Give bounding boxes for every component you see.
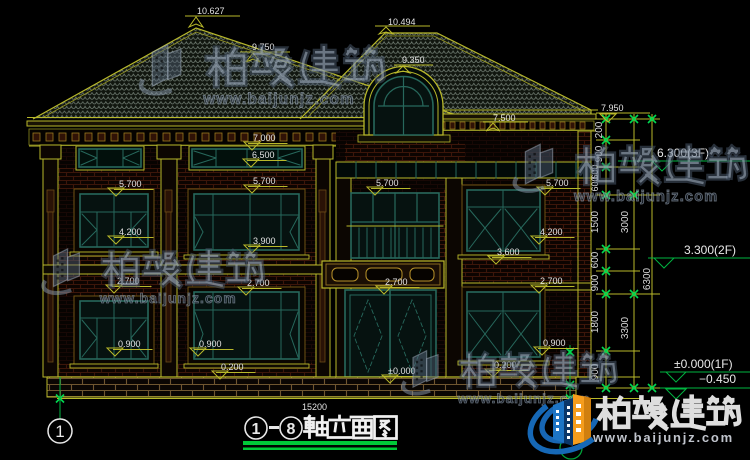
svg-text:900: 900 — [590, 274, 601, 291]
svg-text:www.baijunjz.com: www.baijunjz.com — [592, 430, 734, 445]
svg-text:200: 200 — [594, 121, 605, 138]
svg-text:600: 600 — [590, 251, 601, 268]
svg-text:−0.450: −0.450 — [699, 372, 736, 386]
svg-text:1: 1 — [252, 421, 261, 438]
svg-text:15200: 15200 — [302, 402, 327, 412]
svg-text:1800: 1800 — [590, 310, 601, 333]
svg-text:3.300(2F): 3.300(2F) — [684, 243, 736, 257]
svg-text:10.494: 10.494 — [388, 17, 416, 27]
svg-text:9.350: 9.350 — [402, 55, 425, 65]
svg-text:8: 8 — [287, 421, 296, 438]
svg-text:7.500: 7.500 — [493, 113, 516, 123]
svg-text:3000: 3000 — [620, 210, 631, 233]
svg-text:1500: 1500 — [590, 210, 601, 233]
svg-text:±0.000(1F): ±0.000(1F) — [674, 357, 733, 371]
svg-text:6300: 6300 — [642, 267, 653, 290]
svg-text:10.627: 10.627 — [197, 6, 225, 16]
svg-text:7.950: 7.950 — [601, 103, 624, 113]
svg-text:1: 1 — [55, 422, 64, 441]
svg-text:3300: 3300 — [620, 316, 631, 339]
